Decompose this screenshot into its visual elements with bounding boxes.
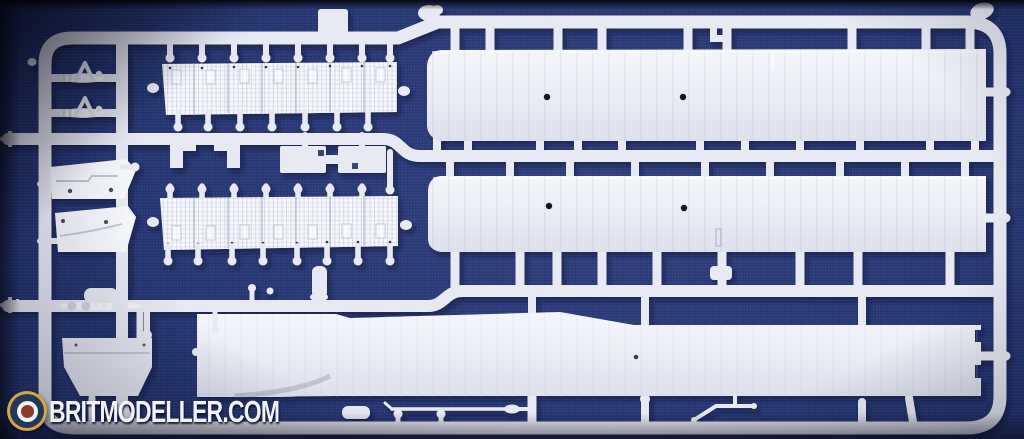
photo-vignette — [0, 0, 1024, 439]
sprue-photo: BRITMODELLER.COM — [0, 0, 1024, 439]
britmodeller-roundel-icon — [7, 391, 47, 431]
watermark: BRITMODELLER.COM — [7, 391, 360, 431]
watermark-text: BRITMODELLER.COM — [49, 396, 279, 427]
